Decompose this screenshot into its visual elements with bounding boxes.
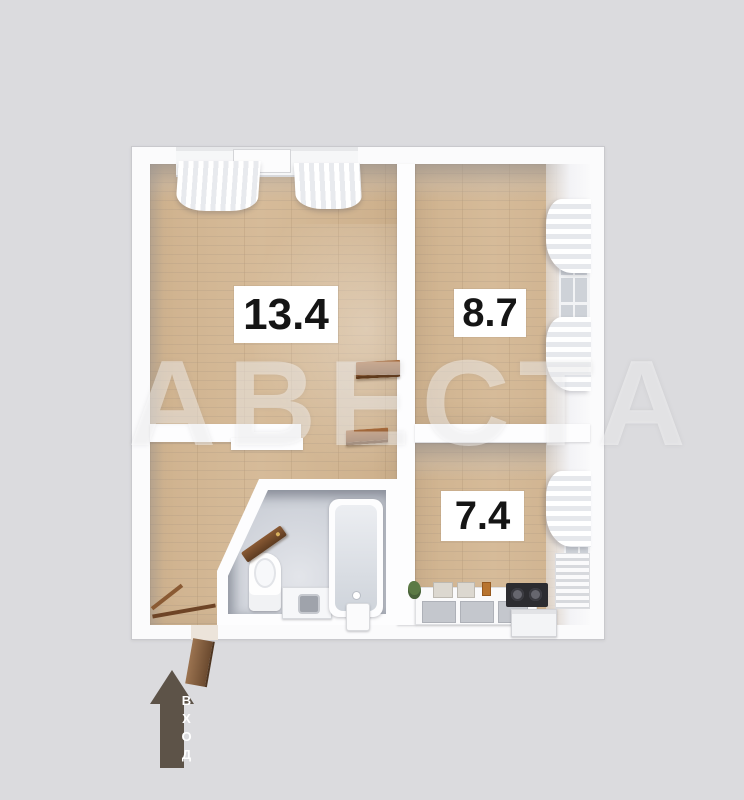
floorplan: 13.4 8.7 7.4 [131,146,605,640]
sink [346,603,370,631]
counter-item [433,582,453,598]
wall-center [397,164,415,625]
curtain [294,163,362,209]
counter-item [457,582,475,598]
cabinet-door [460,601,494,623]
curtain [546,317,591,391]
entrance-label: ВХОД [150,690,194,768]
radiator [555,553,590,609]
area-label-living: 13.4 [234,286,338,343]
wall-shade [150,164,164,625]
curtain [175,161,260,211]
burner [529,588,542,601]
area-label-kitchen: 7.4 [441,491,524,541]
door-leaf [346,428,388,446]
bathtub-drain [352,591,361,600]
oven [511,609,557,637]
area-label-bedroom: 8.7 [454,289,526,337]
toilet-seat [254,558,276,588]
burner [511,588,524,601]
wall-hall-right [415,424,590,442]
toilet [249,553,281,611]
curtain [546,471,591,547]
washing-machine [282,587,332,619]
bathtub [329,499,383,617]
curtain [546,199,591,273]
stove [506,583,548,607]
cabinet-door [422,601,456,623]
plant [408,581,421,599]
door-leaf [356,360,400,379]
wall-stub [231,438,303,450]
washer-door [298,594,320,614]
cutting-board [482,582,491,596]
entrance-arrow-icon: ВХОД [150,670,194,770]
